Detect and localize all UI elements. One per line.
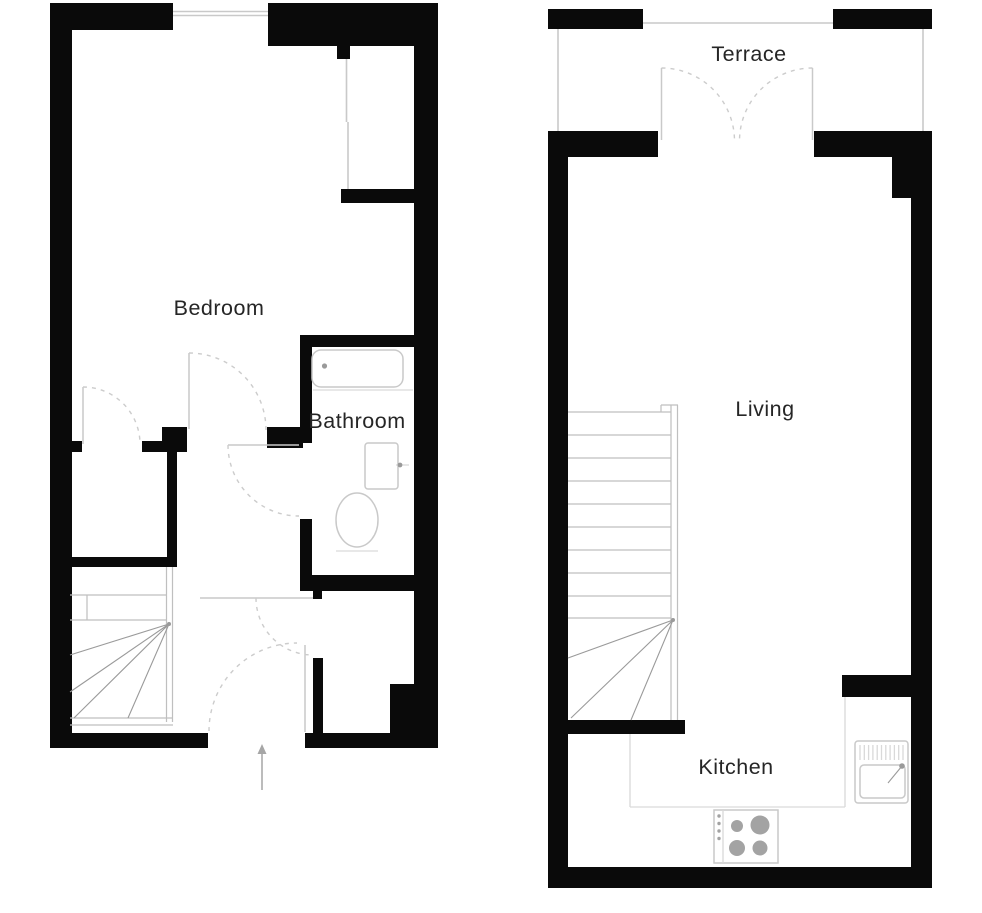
hob-control-dot xyxy=(717,837,720,840)
stair-treads xyxy=(70,567,173,725)
room-label-bedroom: Bedroom xyxy=(174,296,265,320)
bathtub-drain xyxy=(322,363,327,368)
room-label-kitchen: Kitchen xyxy=(698,755,773,779)
hob-burner-small xyxy=(731,820,743,832)
entry-arrow-head xyxy=(258,744,267,754)
bathtub-rim xyxy=(312,350,403,387)
washbasin-icon xyxy=(365,443,409,489)
terrace-boundary xyxy=(558,23,923,131)
french-doors-icon xyxy=(662,68,813,141)
room-label-bathroom: Bathroom xyxy=(308,409,405,433)
room-label-living: Living xyxy=(735,397,794,421)
stair-newel-dot xyxy=(167,622,171,626)
stair-treads xyxy=(568,405,678,720)
floor-plan-page: Bedroom Bathroom xyxy=(0,0,982,913)
bathtub-icon xyxy=(312,350,413,390)
floor-plan-bedroom-level: Bedroom Bathroom xyxy=(50,3,438,790)
counter-edge-lines xyxy=(630,697,845,807)
sink-tap-dot xyxy=(899,763,905,769)
floor-plan-canvas: Bedroom Bathroom xyxy=(0,0,982,913)
kitchen-sink-icon xyxy=(855,741,908,803)
hob-burner-medium xyxy=(729,840,745,856)
hob-control-dot xyxy=(717,829,720,832)
hob-burner-medium xyxy=(753,841,768,856)
hob-control-dot xyxy=(717,814,720,817)
stairs-icon xyxy=(70,567,173,725)
entry-arrow-icon xyxy=(258,744,267,790)
hob-icon xyxy=(714,810,778,863)
stairs-icon xyxy=(568,405,678,720)
hob-burner-large xyxy=(751,816,770,835)
french-door-swing-arcs xyxy=(662,68,813,141)
toilet-bowl xyxy=(336,493,378,547)
french-door-leaves xyxy=(662,68,813,140)
toilet-icon xyxy=(336,493,378,551)
washbasin-bowl xyxy=(365,443,398,489)
floor-plan-living-level: Terrace Living Kitchen xyxy=(548,9,932,888)
hob-control-dot xyxy=(717,822,720,825)
washbasin-tap-dot xyxy=(398,463,403,468)
kitchen-counter xyxy=(630,697,845,807)
room-label-terrace: Terrace xyxy=(711,42,786,66)
stair-winder-lines xyxy=(568,620,673,720)
stair-newel-dot xyxy=(671,618,675,622)
terrace-edge-lines xyxy=(558,23,923,131)
stair-winder-lines xyxy=(70,624,169,718)
